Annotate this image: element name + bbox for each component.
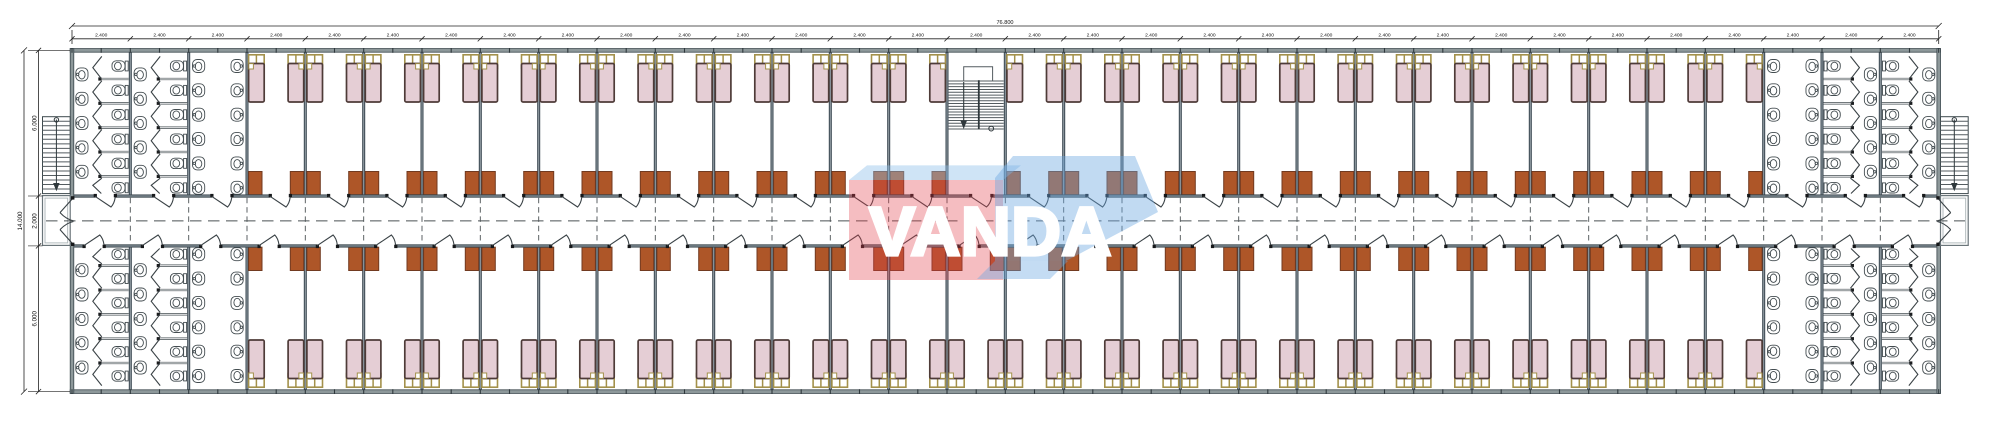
svg-text:2.400: 2.400 — [1728, 33, 1741, 39]
svg-text:2.400: 2.400 — [1670, 33, 1683, 39]
svg-text:2.400: 2.400 — [853, 33, 866, 39]
svg-text:VANDA: VANDA — [869, 193, 1112, 270]
svg-text:2.400: 2.400 — [1787, 33, 1800, 39]
svg-text:2.400: 2.400 — [445, 33, 458, 39]
svg-text:2.400: 2.400 — [503, 33, 516, 39]
svg-text:2.400: 2.400 — [1145, 33, 1158, 39]
svg-text:2.400: 2.400 — [1553, 33, 1566, 39]
svg-text:14.000: 14.000 — [17, 211, 24, 230]
svg-text:2.400: 2.400 — [620, 33, 633, 39]
svg-text:2.000: 2.000 — [31, 213, 38, 229]
svg-text:2.400: 2.400 — [212, 33, 225, 39]
svg-text:2.400: 2.400 — [1845, 33, 1858, 39]
svg-text:2.400: 2.400 — [1320, 33, 1333, 39]
svg-text:2.400: 2.400 — [912, 33, 925, 39]
svg-text:2.400: 2.400 — [678, 33, 691, 39]
svg-text:2.400: 2.400 — [1203, 33, 1216, 39]
svg-text:76.800: 76.800 — [996, 20, 1013, 26]
svg-text:2.400: 2.400 — [562, 33, 575, 39]
svg-text:2.400: 2.400 — [1437, 33, 1450, 39]
svg-text:2.400: 2.400 — [795, 33, 808, 39]
svg-text:6.000: 6.000 — [31, 115, 38, 131]
svg-text:2.400: 2.400 — [1028, 33, 1041, 39]
svg-text:2.400: 2.400 — [737, 33, 750, 39]
svg-text:2.400: 2.400 — [153, 33, 166, 39]
svg-text:2.400: 2.400 — [328, 33, 341, 39]
svg-text:2.400: 2.400 — [1262, 33, 1275, 39]
svg-text:2.400: 2.400 — [1378, 33, 1391, 39]
svg-text:2.400: 2.400 — [1087, 33, 1100, 39]
svg-text:6.000: 6.000 — [31, 310, 38, 326]
svg-text:2.400: 2.400 — [970, 33, 983, 39]
svg-text:2.400: 2.400 — [95, 33, 108, 39]
svg-text:2.400: 2.400 — [387, 33, 400, 39]
svg-text:2.400: 2.400 — [1903, 33, 1916, 39]
svg-text:2.400: 2.400 — [1495, 33, 1508, 39]
svg-text:2.400: 2.400 — [1612, 33, 1625, 39]
svg-text:2.400: 2.400 — [270, 33, 283, 39]
